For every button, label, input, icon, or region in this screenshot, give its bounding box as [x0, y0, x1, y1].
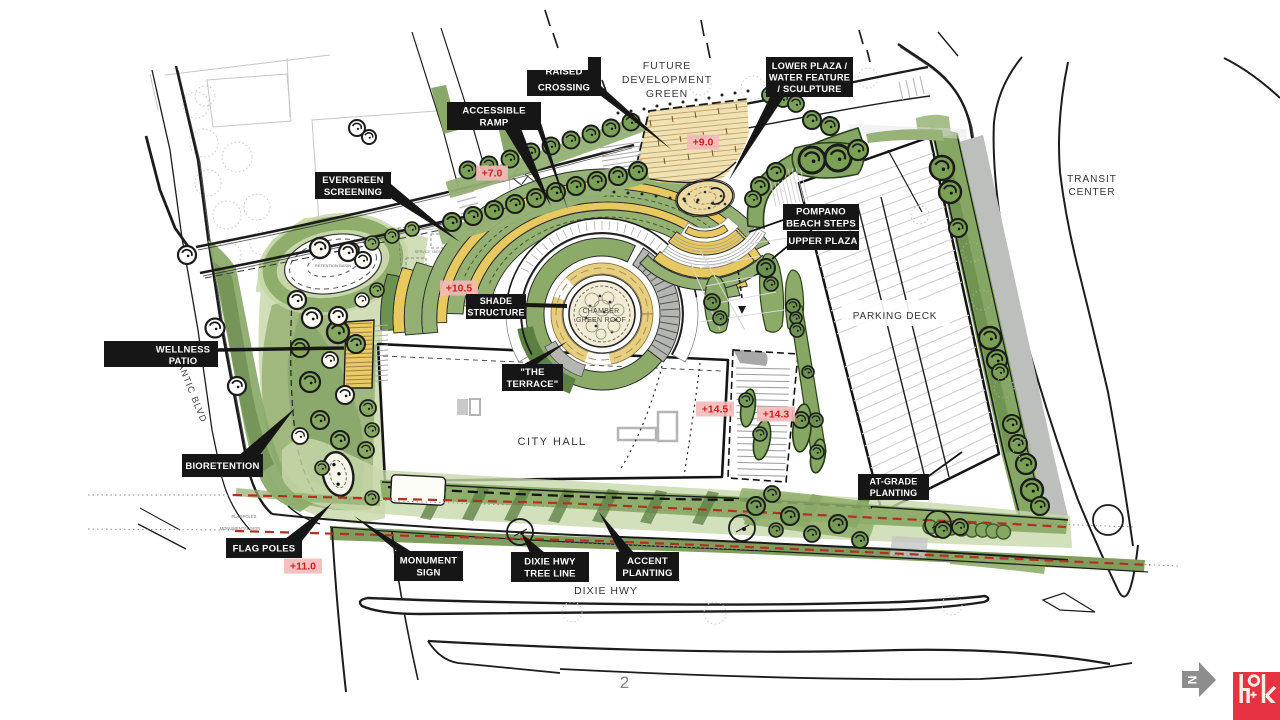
svg-text:ACCENT: ACCENT [627, 556, 668, 567]
svg-text:TERRACE": TERRACE" [506, 379, 558, 390]
svg-text:AT-GRADE: AT-GRADE [870, 477, 918, 487]
svg-text:2: 2 [620, 673, 630, 692]
svg-text:PARKING DECK: PARKING DECK [853, 311, 937, 322]
svg-text:N: N [1185, 676, 1199, 685]
svg-text:BIORETENTION: BIORETENTION [185, 461, 259, 472]
svg-text:SIGN: SIGN [416, 567, 440, 578]
svg-text:STRUCTURE: STRUCTURE [467, 307, 524, 317]
svg-text:FUTURE: FUTURE [643, 60, 692, 72]
svg-text:POMPANO: POMPANO [796, 207, 846, 218]
svg-text:EVERGREEN: EVERGREEN [322, 175, 383, 186]
svg-text:SCREENING: SCREENING [324, 187, 382, 198]
svg-text:PLANTING: PLANTING [622, 568, 672, 579]
svg-text:SERVICE YARD: SERVICE YARD [415, 250, 442, 254]
svg-text:+14.3: +14.3 [763, 409, 790, 421]
svg-text:PLANTING: PLANTING [870, 488, 918, 498]
svg-text:BEACH STEPS: BEACH STEPS [786, 218, 856, 229]
svg-text:PATIO: PATIO [169, 356, 198, 367]
svg-text:FLAG POLES: FLAG POLES [233, 543, 296, 554]
svg-text:GREEN: GREEN [646, 88, 688, 100]
svg-text:GREEN ROOF: GREEN ROOF [576, 317, 626, 324]
svg-text:+9.0: +9.0 [693, 137, 714, 149]
svg-text:DIXIE HWY: DIXIE HWY [524, 557, 576, 568]
svg-text:CHAMBER: CHAMBER [582, 308, 619, 315]
svg-text:+10.5: +10.5 [446, 283, 473, 295]
svg-text:ACCESSIBLE: ACCESSIBLE [462, 106, 525, 117]
svg-text:WELLNESS: WELLNESS [156, 345, 210, 356]
svg-text:+11.0: +11.0 [290, 561, 316, 573]
svg-text:TRANSIT: TRANSIT [1067, 174, 1117, 185]
svg-text:SHADE: SHADE [480, 296, 513, 306]
svg-text:CITY HALL: CITY HALL [518, 436, 587, 448]
svg-text:CROSSING: CROSSING [538, 83, 590, 94]
svg-text:/ SCULPTURE: / SCULPTURE [777, 84, 841, 94]
svg-text:DIXIE HWY: DIXIE HWY [574, 585, 638, 597]
svg-text:FLAGPOLES: FLAGPOLES [232, 514, 257, 519]
svg-text:"THE: "THE [520, 367, 544, 378]
svg-text:RETENTION BASIN: RETENTION BASIN [315, 263, 351, 268]
svg-text:TREE LINE: TREE LINE [524, 568, 575, 579]
svg-text:MONUMENT: MONUMENT [400, 556, 458, 567]
svg-text:LOWER PLAZA /: LOWER PLAZA / [772, 61, 848, 71]
svg-text:+14.5: +14.5 [702, 404, 729, 416]
svg-text:WATER FEATURE: WATER FEATURE [769, 72, 850, 82]
svg-text:UPPER PLAZA: UPPER PLAZA [788, 236, 857, 247]
svg-text:+7.0: +7.0 [482, 168, 503, 180]
svg-text:CENTER: CENTER [1068, 187, 1115, 198]
svg-text:DEVELOPMENT: DEVELOPMENT [622, 74, 712, 86]
svg-text:RAMP: RAMP [480, 117, 509, 128]
